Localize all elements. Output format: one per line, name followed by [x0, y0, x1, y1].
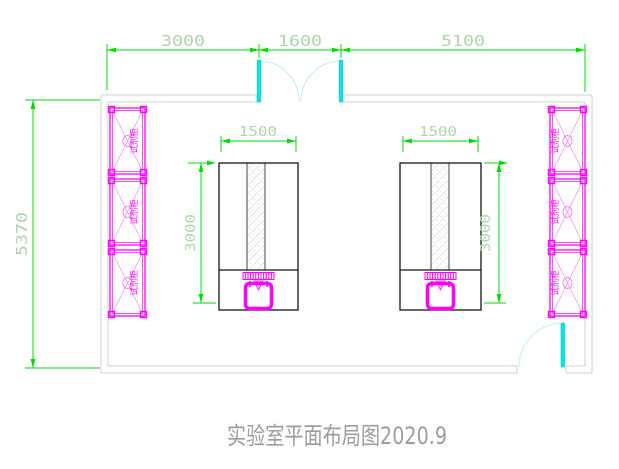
dimension-left-overall[interactable]: 5370: [13, 100, 100, 368]
dimension-top-chain[interactable]: 3000 1600 5100: [107, 32, 585, 92]
double-door-top[interactable]: [257, 60, 343, 102]
dimension-bench2-width[interactable]: 1500: [403, 124, 478, 152]
dimension-bench1-width[interactable]: 1500: [221, 124, 296, 152]
cabinet-label: 试剂柜: [550, 270, 561, 296]
dim-bench1-height: 3000: [183, 214, 199, 252]
cabinet-label: 试剂柜: [129, 270, 140, 296]
cabinet-label: 试剂柜: [129, 199, 140, 225]
door-leaf-right: [339, 60, 343, 102]
floorplan-drawing: 试剂柜 试剂柜 试剂柜: [0, 0, 619, 469]
reagent-shelf-strip: [247, 163, 265, 270]
door-swing-arc-left: [259, 61, 299, 101]
cabinet-column-right: 试剂柜 试剂柜 试剂柜: [549, 107, 587, 318]
dim-top-mid: 1600: [278, 32, 322, 50]
cabinet-label: 试剂柜: [129, 128, 140, 154]
door-leaf: [561, 323, 565, 367]
room-walls[interactable]: [101, 95, 592, 373]
drawing-title: 实验室平面布局图2020.9: [227, 422, 447, 450]
reagent-cabinet[interactable]: 试剂柜: [109, 178, 147, 247]
reagent-cabinet[interactable]: 试剂柜: [109, 107, 147, 176]
door-swing-arc-right: [301, 61, 341, 101]
reagent-cabinet[interactable]: 试剂柜: [109, 249, 147, 318]
cabinet-column-left: 试剂柜 试剂柜 试剂柜: [109, 107, 147, 318]
dimension-bench1-height[interactable]: 3000: [183, 161, 216, 303]
reagent-cabinet[interactable]: 试剂柜: [549, 107, 587, 176]
reagent-cabinet[interactable]: 试剂柜: [549, 249, 587, 318]
cabinet-label: 试剂柜: [550, 199, 561, 225]
lab-bench-right[interactable]: [400, 163, 481, 310]
dim-bench1-width: 1500: [239, 124, 277, 140]
dimension-bench2-height[interactable]: 3000: [478, 161, 508, 303]
single-door-bottom[interactable]: [519, 323, 565, 367]
dim-top-right: 5100: [441, 32, 485, 50]
door-swing-arc: [519, 323, 563, 367]
lab-bench-left[interactable]: [219, 163, 298, 310]
cabinet-label: 试剂柜: [550, 128, 561, 154]
reagent-shelf-strip: [431, 163, 449, 270]
dim-left-overall: 5370: [13, 212, 31, 256]
reagent-cabinet[interactable]: 试剂柜: [549, 178, 587, 247]
dim-bench2-height: 3000: [478, 214, 494, 252]
dim-bench2-width: 1500: [419, 124, 457, 140]
dim-top-left: 3000: [161, 32, 205, 50]
door-leaf-left: [257, 60, 261, 102]
